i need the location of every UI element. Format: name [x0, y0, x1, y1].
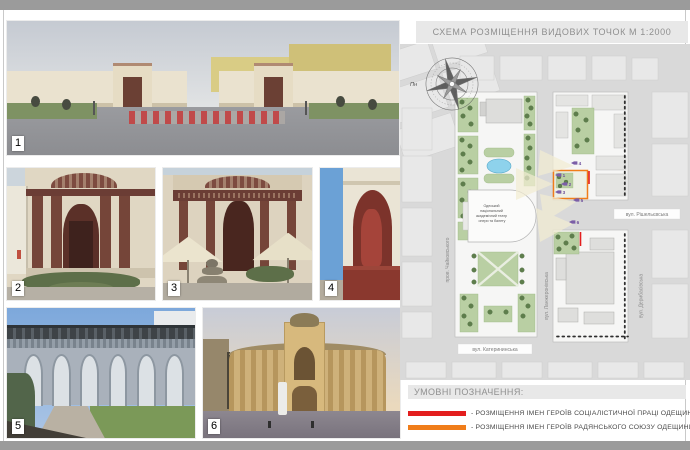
- svg-text:6: 6: [577, 220, 580, 225]
- street-label-chaikovskoho: пров. Чайковського: [444, 237, 451, 282]
- base: [343, 266, 402, 300]
- arch-niche: [165, 354, 184, 406]
- theater-entrance: [292, 386, 318, 412]
- door: [69, 221, 93, 271]
- pedestrian: [268, 421, 271, 428]
- photo-number-6: 6: [208, 419, 220, 434]
- museum-building: [486, 99, 522, 123]
- photo-number-2: 2: [12, 281, 24, 296]
- photo-number-4: 4: [325, 281, 337, 296]
- door: [223, 201, 254, 271]
- arch-niche: [109, 354, 128, 406]
- road: [203, 411, 400, 438]
- north-label: Пн: [410, 82, 417, 88]
- portal-door: [123, 77, 143, 106]
- pedestrian: [17, 250, 21, 259]
- svg-text:4: 4: [579, 161, 582, 166]
- bushes: [246, 266, 294, 282]
- legend-swatch-orange: [408, 425, 466, 430]
- pedestrian: [311, 421, 314, 428]
- photo-number-3: 3: [168, 281, 180, 296]
- top-border-band: [0, 0, 690, 10]
- pond: [487, 159, 511, 173]
- photo-number-5: 5: [12, 419, 24, 434]
- photo-2-portal-facade: 2: [7, 168, 155, 300]
- pavement: [7, 287, 155, 300]
- scheme-title: СХЕМА РОЗМІЩЕННЯ ВИДОВИХ ТОЧОК М 1:2000: [416, 21, 688, 43]
- arch-niche: [52, 354, 71, 406]
- lawn: [90, 406, 195, 439]
- pavement: [163, 283, 312, 300]
- statue: [361, 209, 382, 266]
- theater-arch: [294, 347, 316, 380]
- cornice: [26, 189, 155, 196]
- legend-label: - РОЗМІЩЕННЯ ІМЕН ГЕРОЇВ РАДЯНСЬКОГО СОЮ…: [471, 424, 690, 431]
- lawn: [7, 103, 97, 119]
- street-label-katerynynska: вул. Катерининська: [472, 347, 518, 353]
- street-label-rishelievska: вул. Рішельєвська: [626, 212, 669, 218]
- white-column: [278, 382, 287, 415]
- legend-item-soviet-union: - РОЗМІЩЕННЯ ІМЕН ГЕРОЇВ РАДЯНСЬКОГО СОЮ…: [408, 423, 690, 431]
- scheme-sheet: 1 2: [0, 0, 690, 450]
- portal-door: [264, 77, 284, 106]
- photo-5-arched-wall: 5: [7, 308, 195, 438]
- photo-1-street-panorama: 1: [7, 21, 399, 155]
- photo-3-facade-umbrellas: 3: [163, 168, 312, 300]
- photo-4-statue-niche: 4: [320, 168, 402, 300]
- red-crosswalk: [129, 111, 286, 124]
- sky: [163, 168, 312, 175]
- arch-niche: [80, 354, 99, 406]
- balustrade: [7, 328, 195, 340]
- svg-text:2: 2: [569, 182, 572, 187]
- side-building: [203, 339, 229, 412]
- svg-text:1: 1: [563, 173, 566, 178]
- lawn: [309, 103, 399, 119]
- street-label-derybasivska: вул. Дерибасівська: [639, 274, 645, 319]
- legend-item-socialist-labor: - РОЗМІЩЕННЯ ІМЕН ГЕРОЇВ СОЦІАЛІСТИЧНОЇ …: [408, 409, 690, 417]
- svg-text:3: 3: [563, 190, 566, 195]
- photo-6-opera-theater: 6: [203, 308, 400, 438]
- legend-label: - РОЗМІЩЕННЯ ІМЕН ГЕРОЇВ СОЦІАЛІСТИЧНОЇ …: [471, 410, 690, 417]
- bottom-border-band: [0, 441, 690, 450]
- street-label-lanzheronivska: вул. Ланжеронівська: [544, 272, 550, 320]
- photo-number-1: 1: [12, 136, 24, 151]
- arch-niche: [137, 354, 156, 406]
- left-border-line: [3, 10, 4, 441]
- adjacent-building: [7, 186, 28, 273]
- legend-heading: УМОВНІ ПОЗНАЧЕННЯ:: [408, 385, 686, 399]
- site-plan-map: Одеський національний академічний театр …: [400, 44, 690, 380]
- theater-dome: [290, 313, 320, 327]
- svg-text:5: 5: [581, 198, 584, 203]
- legend-swatch-red: [408, 411, 466, 416]
